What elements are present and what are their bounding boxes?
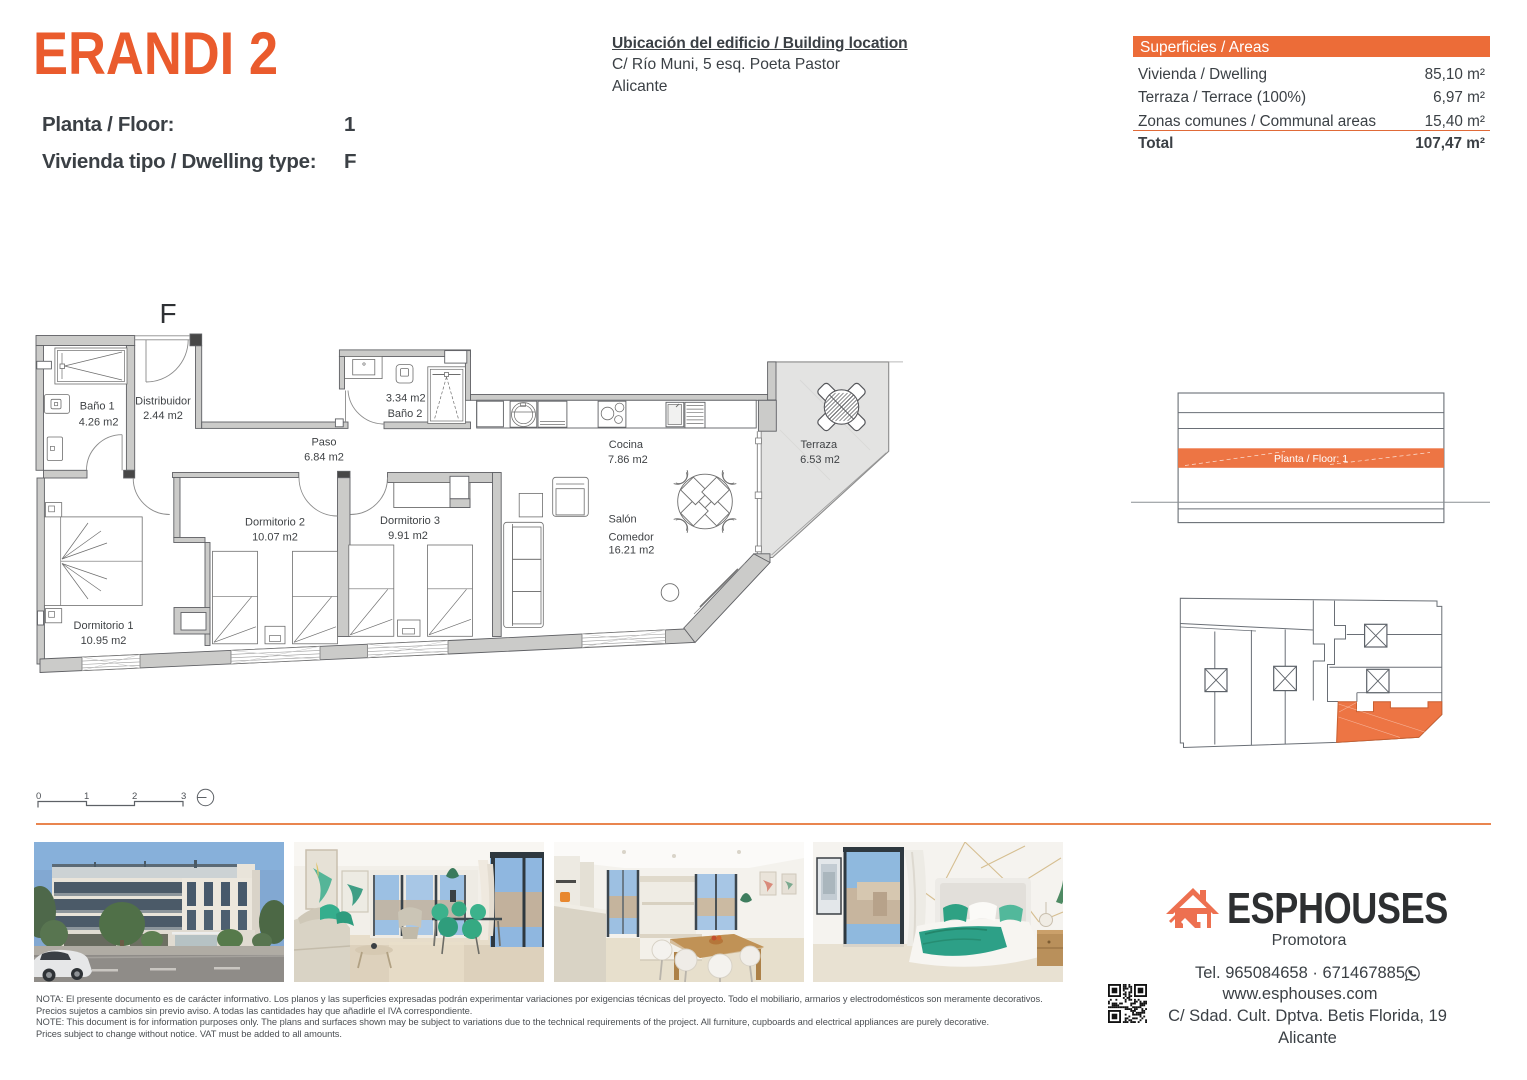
svg-text:Dormitorio 1: Dormitorio 1 bbox=[74, 620, 134, 632]
svg-text:6.84 m2: 6.84 m2 bbox=[304, 452, 344, 464]
svg-text:Terraza: Terraza bbox=[800, 439, 838, 451]
svg-text:0: 0 bbox=[36, 791, 41, 802]
svg-text:4.26 m2: 4.26 m2 bbox=[79, 416, 119, 428]
svg-text:2: 2 bbox=[132, 791, 137, 802]
svg-text:1: 1 bbox=[84, 791, 89, 802]
svg-text:Dormitorio 2: Dormitorio 2 bbox=[245, 517, 305, 529]
svg-text:Baño 2: Baño 2 bbox=[388, 408, 423, 420]
svg-text:Baño 1: Baño 1 bbox=[80, 400, 115, 412]
svg-text:16.21 m2: 16.21 m2 bbox=[609, 544, 655, 556]
svg-text:Dormitorio 3: Dormitorio 3 bbox=[380, 515, 440, 527]
svg-text:Cocina: Cocina bbox=[609, 439, 644, 451]
svg-text:10.07 m2: 10.07 m2 bbox=[252, 532, 298, 544]
svg-text:Planta / Floor: 1: Planta / Floor: 1 bbox=[1274, 453, 1348, 465]
svg-text:Distribuidor: Distribuidor bbox=[135, 395, 191, 407]
svg-text:3.34 m2: 3.34 m2 bbox=[386, 392, 426, 404]
svg-text:7.86 m2: 7.86 m2 bbox=[608, 454, 648, 466]
svg-text:Salón: Salón bbox=[609, 514, 637, 526]
svg-text:Comedor: Comedor bbox=[609, 532, 655, 544]
svg-text:3: 3 bbox=[181, 791, 186, 802]
svg-text:Paso: Paso bbox=[311, 437, 336, 449]
svg-text:6.53 m2: 6.53 m2 bbox=[800, 454, 840, 466]
svg-text:2.44 m2: 2.44 m2 bbox=[143, 410, 183, 422]
svg-text:F: F bbox=[159, 298, 176, 329]
svg-text:9.91 m2: 9.91 m2 bbox=[388, 530, 428, 542]
svg-text:10.95 m2: 10.95 m2 bbox=[81, 635, 127, 647]
